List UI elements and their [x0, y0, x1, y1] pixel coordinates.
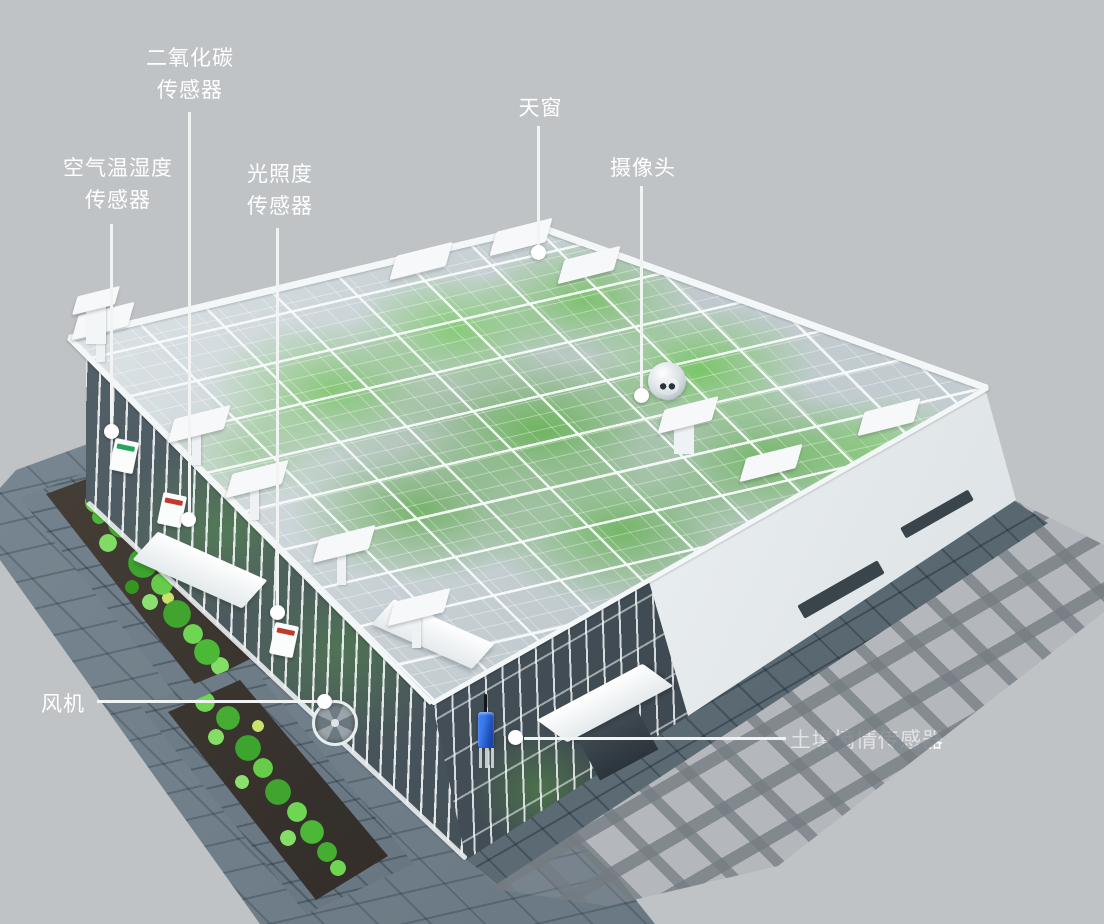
probe-prong	[485, 748, 488, 768]
soil-moisture-probe	[474, 694, 498, 774]
callout-air-label: 空气温湿度 传感器	[48, 152, 188, 216]
callout-air-leader-line	[110, 224, 113, 426]
probe-antenna	[484, 694, 487, 714]
camera-lens-face	[656, 377, 679, 395]
callout-light-marker-dot	[270, 605, 285, 620]
callout-soil-marker-dot	[508, 730, 523, 745]
greenhouse-illustration: 二氧化碳 传感器 空气温湿度 传感器 光照度 传感器 天窗 摄像头 风机 土壤墒…	[0, 0, 1104, 924]
callout-fan-marker-dot	[317, 694, 332, 709]
callout-skylight-marker-dot	[531, 245, 546, 260]
callout-fan-label: 风机	[20, 688, 106, 720]
probe-prong	[479, 748, 482, 768]
callout-co2-leader-line	[188, 112, 191, 514]
dome-camera	[648, 362, 686, 400]
callout-co2-label: 二氧化碳 传感器	[120, 42, 260, 106]
callout-skylight-leader-line	[537, 126, 540, 248]
callout-fan-leader-line	[97, 700, 319, 703]
callout-air-marker-dot	[104, 424, 119, 439]
callout-camera-leader-line	[640, 186, 643, 388]
probe-body	[478, 712, 494, 748]
callout-light-leader-line	[276, 228, 279, 608]
callout-co2-marker-dot	[181, 512, 196, 527]
callout-soil-leader-line	[524, 737, 786, 740]
callout-camera-marker-dot	[634, 388, 649, 403]
probe-prong	[491, 748, 494, 768]
callout-skylight-label: 天窗	[488, 92, 593, 124]
callout-camera-label: 摄像头	[588, 152, 698, 184]
callout-light-label: 光照度 传感器	[210, 158, 350, 222]
